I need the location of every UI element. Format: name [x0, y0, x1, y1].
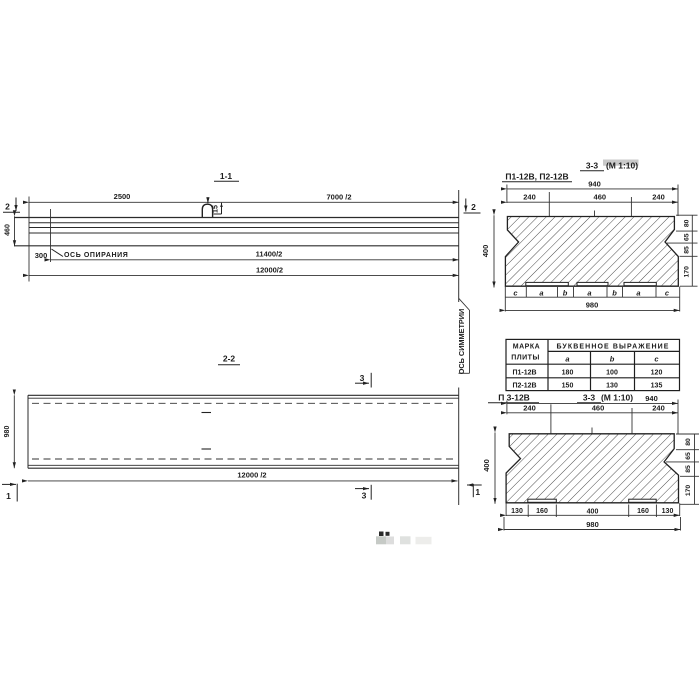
svg-text:980: 980	[4, 426, 11, 438]
svg-text:1: 1	[475, 487, 480, 497]
svg-text:2-2: 2-2	[223, 354, 236, 364]
svg-text:2: 2	[471, 202, 476, 212]
svg-text:180: 180	[562, 369, 574, 376]
svg-text:ПЛИТЫ: ПЛИТЫ	[511, 355, 540, 362]
svg-text:3: 3	[362, 491, 367, 501]
svg-text:3-3: 3-3	[586, 161, 599, 171]
svg-text:12000 /2: 12000 /2	[237, 470, 266, 479]
svg-text:300: 300	[35, 251, 48, 260]
svg-text:с: с	[513, 288, 518, 297]
svg-text:а: а	[565, 355, 569, 364]
svg-text:400: 400	[482, 459, 491, 472]
svg-text:(М 1:10): (М 1:10)	[606, 161, 638, 171]
svg-text:65: 65	[685, 452, 692, 460]
svg-text:2: 2	[5, 202, 10, 212]
svg-text:240: 240	[652, 192, 665, 201]
svg-text:а: а	[539, 288, 543, 297]
svg-text:П1-12В: П1-12В	[512, 369, 536, 376]
svg-text:15: 15	[211, 205, 220, 213]
svg-text:460: 460	[592, 404, 605, 413]
svg-text:940: 940	[588, 180, 601, 189]
svg-text:2500: 2500	[114, 192, 131, 201]
svg-text:b: b	[563, 288, 568, 297]
svg-text:65: 65	[683, 233, 690, 241]
svg-text:460: 460	[594, 192, 607, 201]
svg-text:980: 980	[586, 301, 599, 310]
svg-text:b: b	[612, 288, 617, 297]
svg-text:1-1: 1-1	[220, 171, 233, 181]
svg-text:ОСЬ ОПИРАНИЯ: ОСЬ ОПИРАНИЯ	[64, 252, 128, 259]
svg-text:160: 160	[536, 508, 548, 515]
svg-text:ОСЬ СИММЕТРИИ: ОСЬ СИММЕТРИИ	[457, 309, 466, 375]
svg-text:130: 130	[511, 508, 523, 515]
svg-text:240: 240	[523, 404, 536, 413]
svg-text:130: 130	[662, 508, 674, 515]
svg-text:П 3-12В: П 3-12В	[498, 393, 530, 403]
svg-text:П1-12В, П2-12В: П1-12В, П2-12В	[505, 172, 568, 182]
svg-text:135: 135	[651, 383, 663, 390]
svg-text:980: 980	[586, 520, 599, 529]
svg-text:240: 240	[652, 404, 665, 413]
svg-text:160: 160	[637, 508, 649, 515]
svg-text:940: 940	[645, 394, 658, 403]
svg-text:85: 85	[683, 246, 690, 254]
svg-text:(М 1:10): (М 1:10)	[601, 393, 633, 403]
svg-text:с: с	[654, 355, 659, 364]
svg-text:460: 460	[5, 224, 12, 236]
svg-text:170: 170	[685, 485, 692, 497]
svg-text:БУКВЕННОЕ ВЫРАЖЕНИЕ: БУКВЕННОЕ ВЫРАЖЕНИЕ	[556, 344, 669, 351]
svg-text:11400/2: 11400/2	[256, 250, 283, 259]
svg-text:МАРКА: МАРКА	[513, 344, 540, 351]
svg-text:3-3: 3-3	[583, 393, 596, 403]
svg-text:120: 120	[651, 369, 663, 376]
svg-text:150: 150	[562, 383, 574, 390]
svg-text:400: 400	[481, 245, 490, 258]
svg-text:100: 100	[606, 369, 618, 376]
svg-text:1: 1	[6, 491, 11, 501]
svg-text:П2-12В: П2-12В	[512, 383, 536, 390]
svg-text:80: 80	[685, 438, 692, 446]
svg-text:240: 240	[523, 192, 536, 201]
svg-text:3: 3	[360, 373, 365, 383]
svg-text:а: а	[636, 288, 640, 297]
svg-text:b: b	[610, 355, 615, 364]
svg-text:400: 400	[587, 508, 599, 515]
svg-text:12000/2: 12000/2	[256, 265, 283, 274]
svg-text:170: 170	[683, 266, 690, 278]
svg-text:85: 85	[685, 465, 692, 473]
svg-text:7000 /2: 7000 /2	[326, 193, 351, 202]
svg-text:а: а	[587, 288, 591, 297]
svg-text:с: с	[665, 288, 670, 297]
svg-text:80: 80	[683, 219, 690, 227]
svg-text:130: 130	[606, 383, 618, 390]
